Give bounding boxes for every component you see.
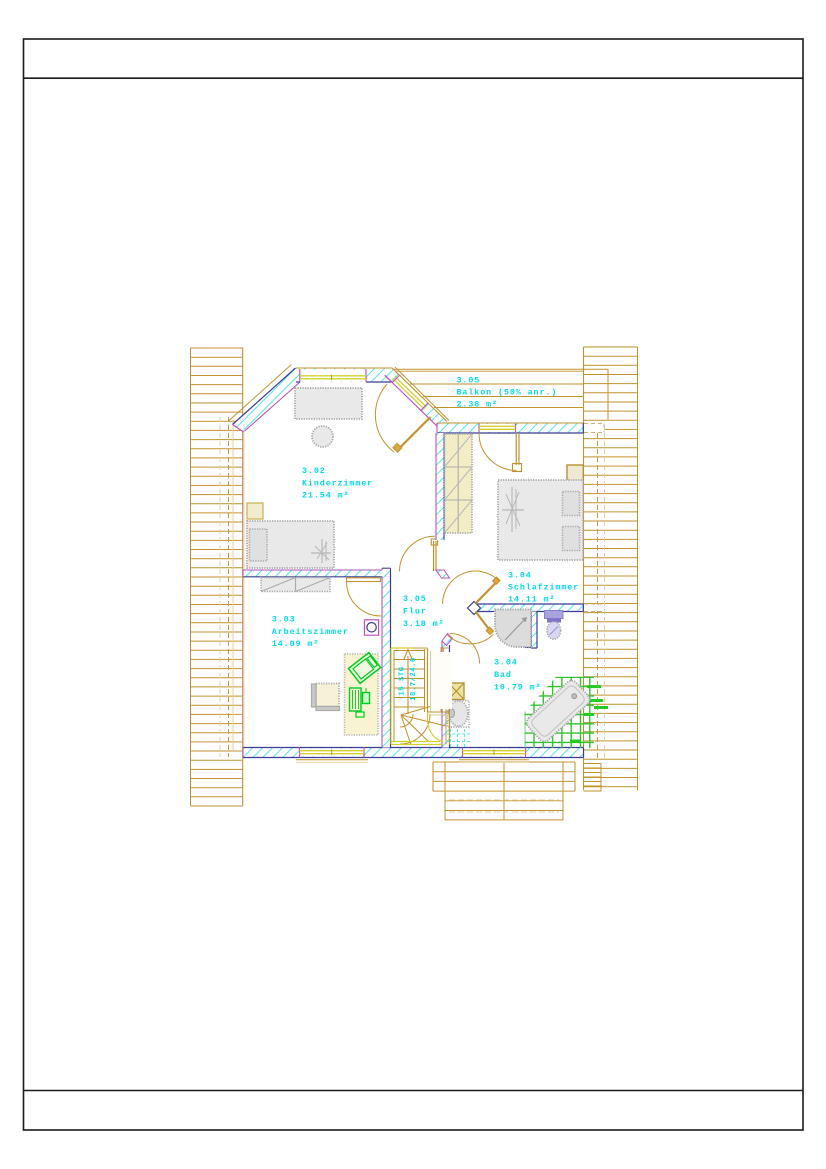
svg-text:3.02: 3.02 xyxy=(302,466,326,476)
svg-text:3.05: 3.05 xyxy=(457,375,481,385)
svg-text:3.03: 3.03 xyxy=(272,615,296,625)
svg-text:21.54 m²: 21.54 m² xyxy=(302,490,349,500)
svg-text:Balkon (50% anr.): Balkon (50% anr.) xyxy=(457,388,558,398)
svg-text:Arbeitszimmer: Arbeitszimmer xyxy=(272,627,349,637)
svg-text:Schlafzimmer: Schlafzimmer xyxy=(508,583,579,593)
svg-text:3.04: 3.04 xyxy=(494,657,518,667)
svg-text:14.09 m²: 14.09 m² xyxy=(272,639,319,649)
svg-text:3.04: 3.04 xyxy=(508,570,532,580)
svg-text:2.38 m²: 2.38 m² xyxy=(457,399,498,409)
svg-text:Bad: Bad xyxy=(494,670,512,680)
svg-text:15 STG: 15 STG xyxy=(399,666,407,695)
svg-text:18.7/24.6: 18.7/24.6 xyxy=(410,657,418,701)
svg-text:Flur: Flur xyxy=(403,607,427,617)
svg-text:3.18 m²: 3.18 m² xyxy=(403,619,444,629)
svg-text:3.05: 3.05 xyxy=(403,594,427,604)
svg-text:14.11 m²: 14.11 m² xyxy=(508,594,555,604)
svg-text:Kinderzimmer: Kinderzimmer xyxy=(302,479,373,489)
svg-text:10.79 m²: 10.79 m² xyxy=(494,683,541,693)
